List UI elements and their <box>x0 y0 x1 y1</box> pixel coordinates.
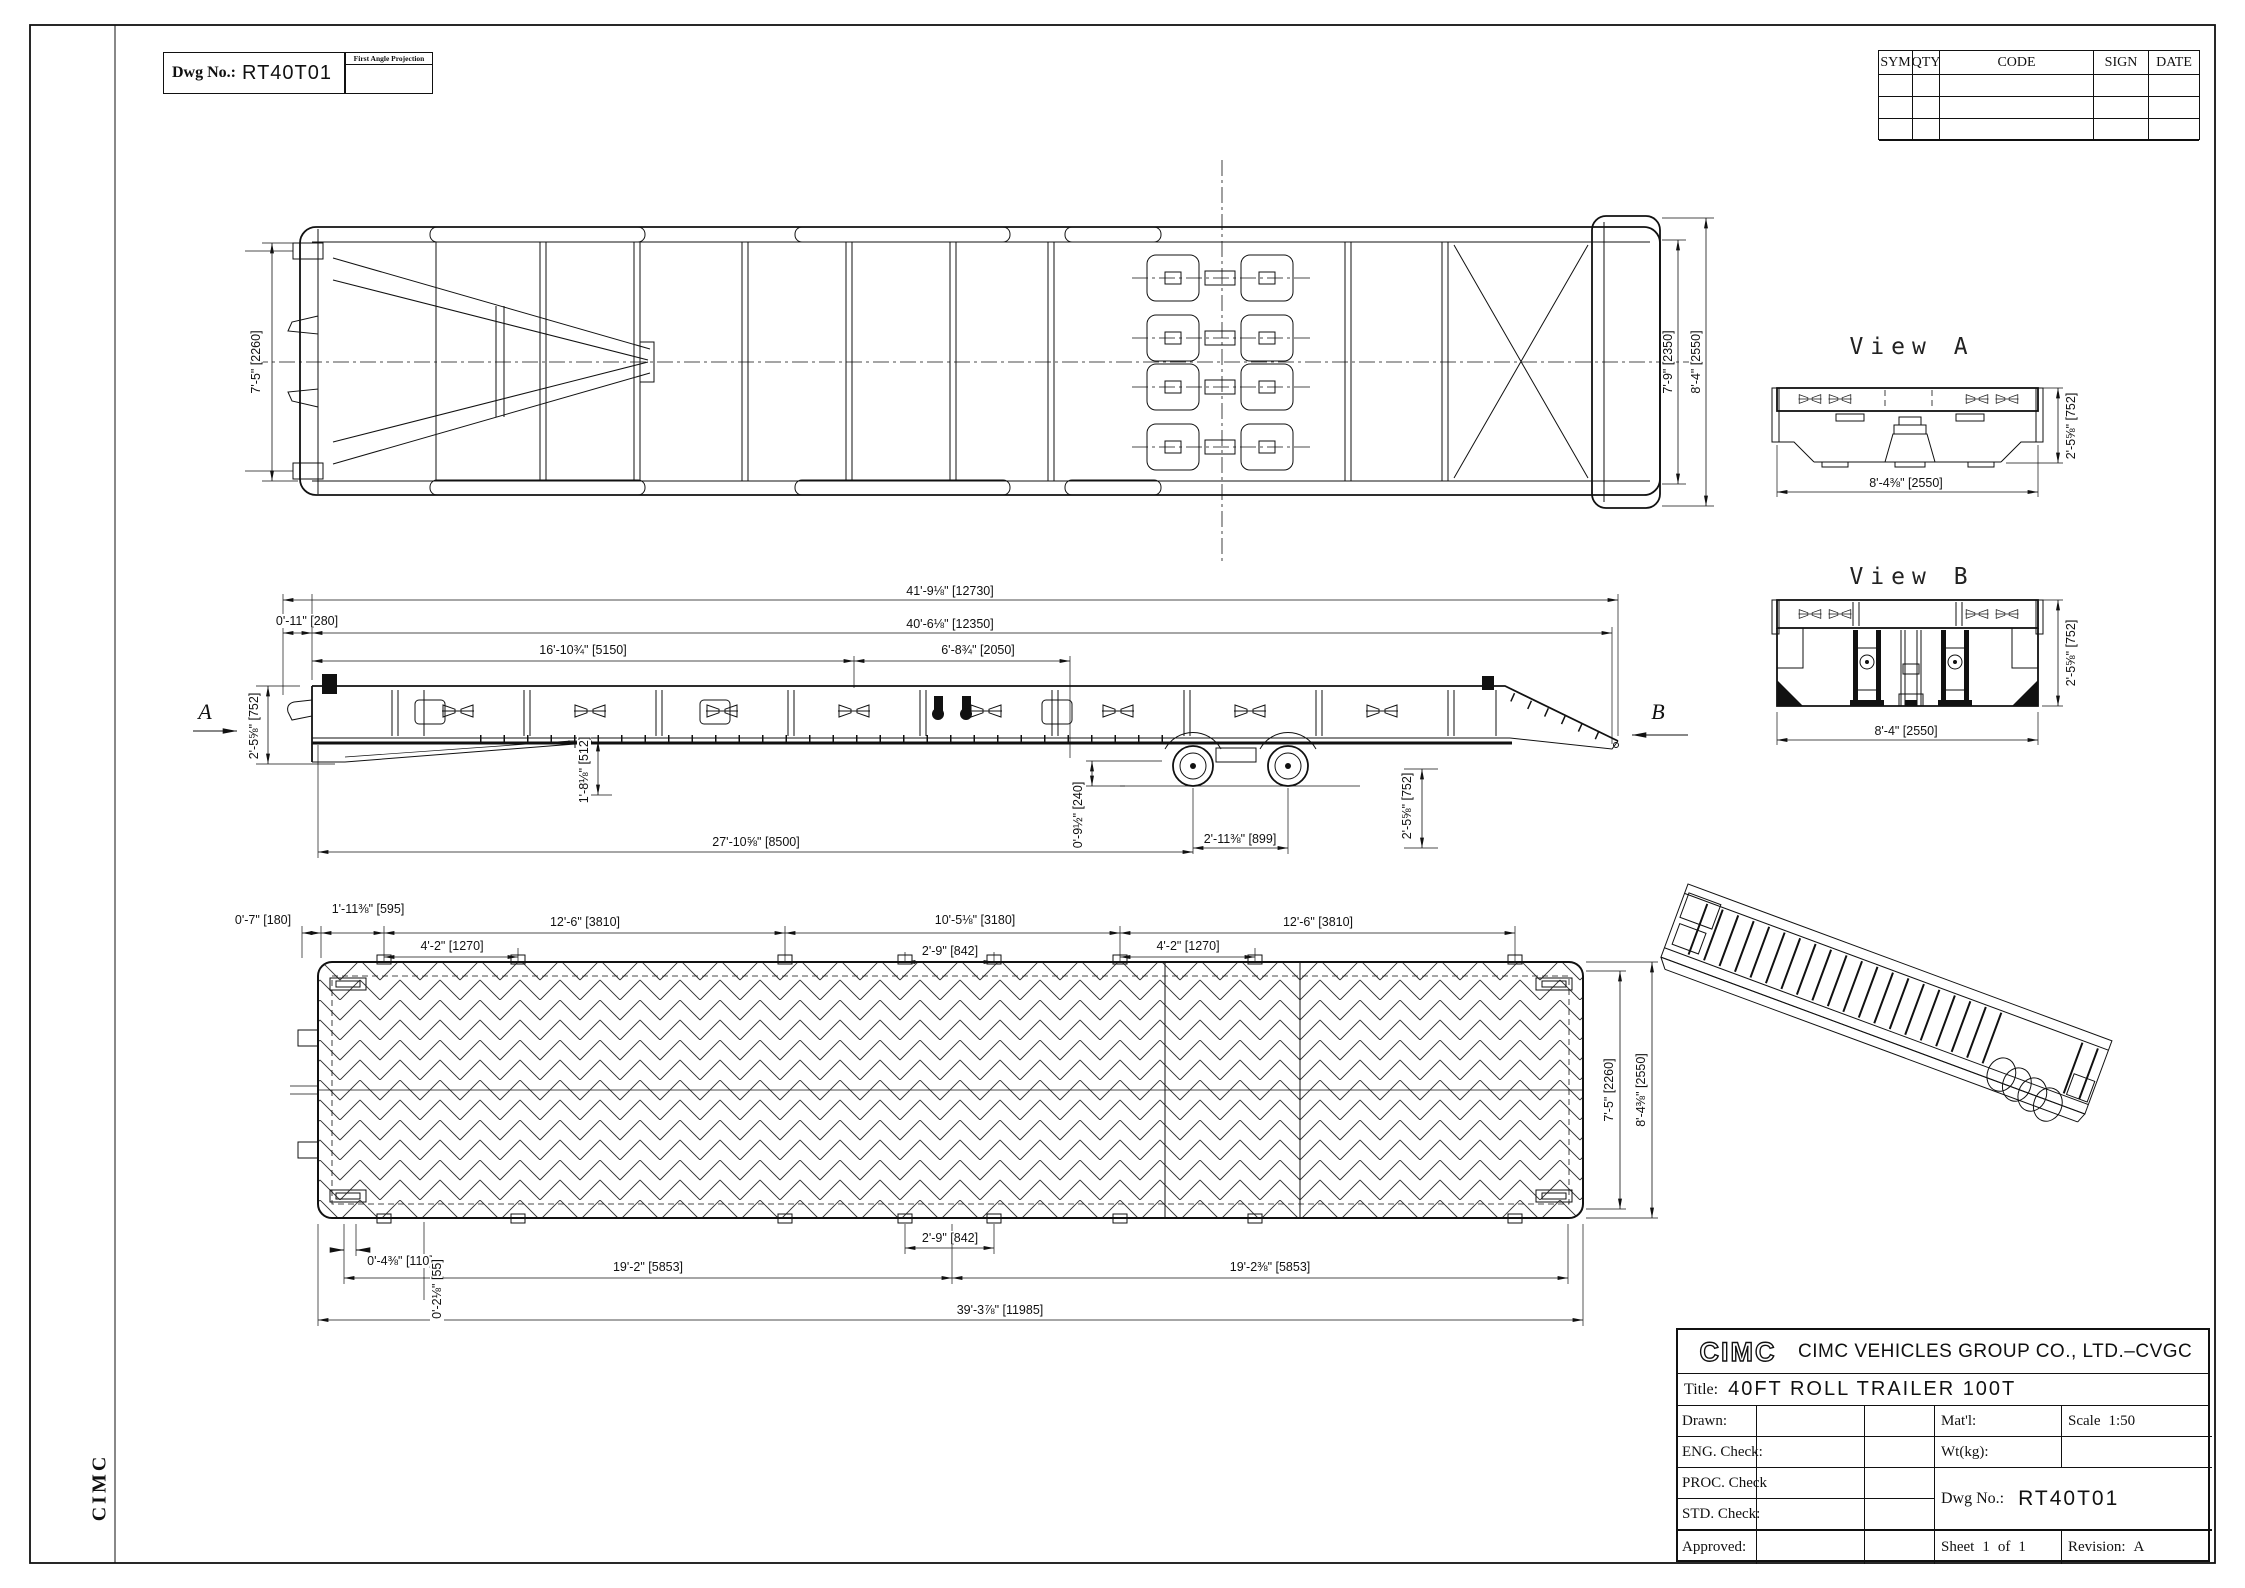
dim-view-b-height: 2'-5⅝" [752] <box>2064 618 2078 689</box>
titleblock-dwg-label: Dwg No.: <box>1941 1490 2004 1508</box>
sheet-cell: Sheet 1 of 1 <box>1935 1530 2061 1564</box>
projection-label: First Angle Projection <box>346 53 432 65</box>
view-a-title: View A <box>1849 334 1974 360</box>
sheet-no: 1 <box>1982 1539 1990 1556</box>
section-letter-b: B <box>1648 699 1667 725</box>
std-check-date <box>1865 1499 1935 1530</box>
revision-cell <box>1940 119 2094 141</box>
drawing-title: 40FT ROLL TRAILER 100T <box>1728 1378 2016 1401</box>
dim-half-left: 19'-2" [5853] <box>611 1260 685 1274</box>
revision-cell <box>1879 97 1913 119</box>
drawn-value <box>1757 1406 1865 1437</box>
dim-front-overhang: 0'-11" [280] <box>274 614 340 628</box>
dim-gooseneck: 16'-10¾" [5150] <box>537 643 628 657</box>
scale-value: 1:50 <box>2108 1413 2135 1430</box>
dim-view-b-width: 8'-4" [2550] <box>1872 724 1939 738</box>
revision-cell <box>1879 75 1913 97</box>
revision-cell <box>2094 97 2149 119</box>
revision-value: A <box>2134 1539 2145 1556</box>
dim-first-cleat: 1'-11⅜" [595] <box>330 902 407 916</box>
dim-top-width-rear: 7'-9" [2350] <box>1661 328 1675 395</box>
dwg-no-box: Dwg No.: RT40T01 <box>163 52 345 94</box>
revision-cell <box>1940 97 2094 119</box>
revision-cell <box>1913 75 1940 97</box>
sheet-total: 1 <box>2018 1539 2026 1556</box>
dim-deck-width: 7'-5" [2260] <box>1602 1056 1616 1123</box>
dwg-no-label: Dwg No.: <box>172 64 236 82</box>
of-label: of <box>1998 1539 2011 1556</box>
deck-view-drawing <box>290 926 1658 1326</box>
revision-cell <box>1913 119 1940 141</box>
dim-wheelbase-front: 27'-10⅝" [8500] <box>710 835 801 849</box>
revision-cell <box>2149 97 2199 119</box>
dim-bay-right: 12'-6" [3810] <box>1281 915 1355 929</box>
projection-box: First Angle Projection <box>345 52 433 94</box>
drawn-label: Drawn: <box>1678 1406 1757 1437</box>
title-block-company-row: CIMC CIMC VEHICLES GROUP CO., LTD.–CVGC <box>1678 1330 2208 1374</box>
revision-table: SYM QTY CODE SIGN DATE <box>1878 50 2200 140</box>
eng-check-value <box>1757 1437 1865 1468</box>
dim-overall-width: 8'-4⅜" [2550] <box>1634 1051 1648 1129</box>
approved-date <box>1865 1530 1935 1564</box>
view-b-title: View B <box>1849 564 1974 590</box>
dim-view-a-width: 8'-4⅜" [2550] <box>1867 476 1945 490</box>
top-view-drawing <box>245 160 1714 562</box>
dim-edge-offset: 0'-4⅜" [110] <box>365 1254 435 1268</box>
dim-view-a-height: 2'-5⅝" [752] <box>2064 391 2078 462</box>
side-view-drawing <box>193 594 1688 858</box>
sheet-label: Sheet <box>1941 1539 1974 1556</box>
dim-ground-clearance: 0'-9½" [240] <box>1071 780 1085 851</box>
dim-top-width-inner: 7'-5" [2260] <box>249 328 263 395</box>
dim-total-length: 41'-9⅛" [12730] <box>904 584 995 598</box>
dim-cleat-center: 2'-9" [842] <box>920 944 980 958</box>
approved-label: Approved: <box>1678 1530 1757 1564</box>
dim-bay-center: 10'-5⅛" [3180] <box>933 913 1018 927</box>
dwg-no-value: RT40T01 <box>242 62 332 85</box>
cimc-logo-text: CIMC <box>1700 1337 1777 1367</box>
dim-half-right: 19'-2⅜" [5853] <box>1228 1260 1313 1274</box>
title-row: Title: 40FT ROLL TRAILER 100T <box>1678 1374 2208 1406</box>
revision-col-code: CODE <box>1940 51 2094 75</box>
revision-cell <box>1879 119 1913 141</box>
revision-col-date: DATE <box>2149 51 2199 75</box>
revision-cell <box>2149 119 2199 141</box>
revision-cell-main: Revision: A <box>2061 1530 2212 1564</box>
dim-cleat-pitch-right: 4'-2" [1270] <box>1154 939 1221 953</box>
std-check-label: STD. Check: <box>1678 1499 1757 1530</box>
proc-check-date <box>1865 1468 1935 1499</box>
dim-rear-height: 2'-5⅝" [752] <box>1400 771 1414 842</box>
revision-label: Revision: <box>2068 1539 2126 1556</box>
revision-cell <box>1913 97 1940 119</box>
dim-side-offset: 0'-2⅛" [55] <box>430 1257 444 1321</box>
matl-label: Mat'l: <box>1935 1406 2061 1437</box>
revision-col-qty: QTY <box>1913 51 1940 75</box>
wt-label: Wt(kg): <box>1935 1437 2061 1468</box>
revision-cell <box>2094 119 2149 141</box>
wt-value <box>2061 1437 2212 1468</box>
cimc-logo: CIMC <box>1686 1335 1790 1369</box>
dim-axle-spacing: 2'-11⅜" [899] <box>1202 832 1279 846</box>
title-label: Title: <box>1684 1381 1718 1399</box>
title-block: CIMC CIMC VEHICLES GROUP CO., LTD.–CVGC … <box>1676 1328 2210 1562</box>
dim-body-length: 40'-6⅛" [12350] <box>904 617 995 631</box>
isometric-view-drawing <box>1654 884 2112 1134</box>
approval-grid: Drawn: ENG. Check: PROC. Check STD. Chec… <box>1678 1406 1935 1564</box>
eng-check-date <box>1865 1437 1935 1468</box>
dim-bay-left: 12'-6" [3810] <box>548 915 622 929</box>
dim-center-gap: 2'-9" [842] <box>920 1231 980 1245</box>
dim-rear-section: 6'-8¾" [2050] <box>939 643 1017 657</box>
dim-neck-drop: 1'-8⅛" [512] <box>577 735 591 806</box>
dim-front-edge: 0'-7" [180] <box>233 913 293 927</box>
approved-value <box>1757 1530 1865 1564</box>
dim-front-height: 2'-5⅝" [752] <box>247 691 261 762</box>
section-letter-a: A <box>195 699 214 725</box>
proc-check-label: PROC. Check <box>1678 1468 1757 1499</box>
std-check-value <box>1757 1499 1865 1530</box>
drawing-sheet: Dwg No.: RT40T01 First Angle Projection … <box>0 0 2245 1588</box>
margin-brand: CIMC <box>89 1448 112 1528</box>
info-grid: Mat'l: Scale 1:50 Wt(kg): Dwg No.: RT40T… <box>1935 1406 2212 1564</box>
proc-check-value <box>1757 1468 1865 1499</box>
drawn-date <box>1865 1406 1935 1437</box>
company-name: CIMC VEHICLES GROUP CO., LTD.–CVGC <box>1798 1341 2192 1363</box>
titleblock-dwg-value: RT40T01 <box>2018 1487 2119 1511</box>
dim-top-width-overall: 8'-4" [2550] <box>1689 328 1703 395</box>
eng-check-label: ENG. Check: <box>1678 1437 1757 1468</box>
revision-col-sym: SYM <box>1879 51 1913 75</box>
dwg-no-cell: Dwg No.: RT40T01 <box>1935 1468 2212 1530</box>
revision-cell <box>1940 75 2094 97</box>
dim-cleat-pitch-left: 4'-2" [1270] <box>418 939 485 953</box>
revision-cell <box>2094 75 2149 97</box>
scale-cell: Scale 1:50 <box>2061 1406 2212 1437</box>
revision-col-sign: SIGN <box>2094 51 2149 75</box>
scale-label: Scale <box>2068 1413 2100 1430</box>
revision-cell <box>2149 75 2199 97</box>
dim-deck-length: 39'-3⅞" [11985] <box>955 1303 1046 1317</box>
